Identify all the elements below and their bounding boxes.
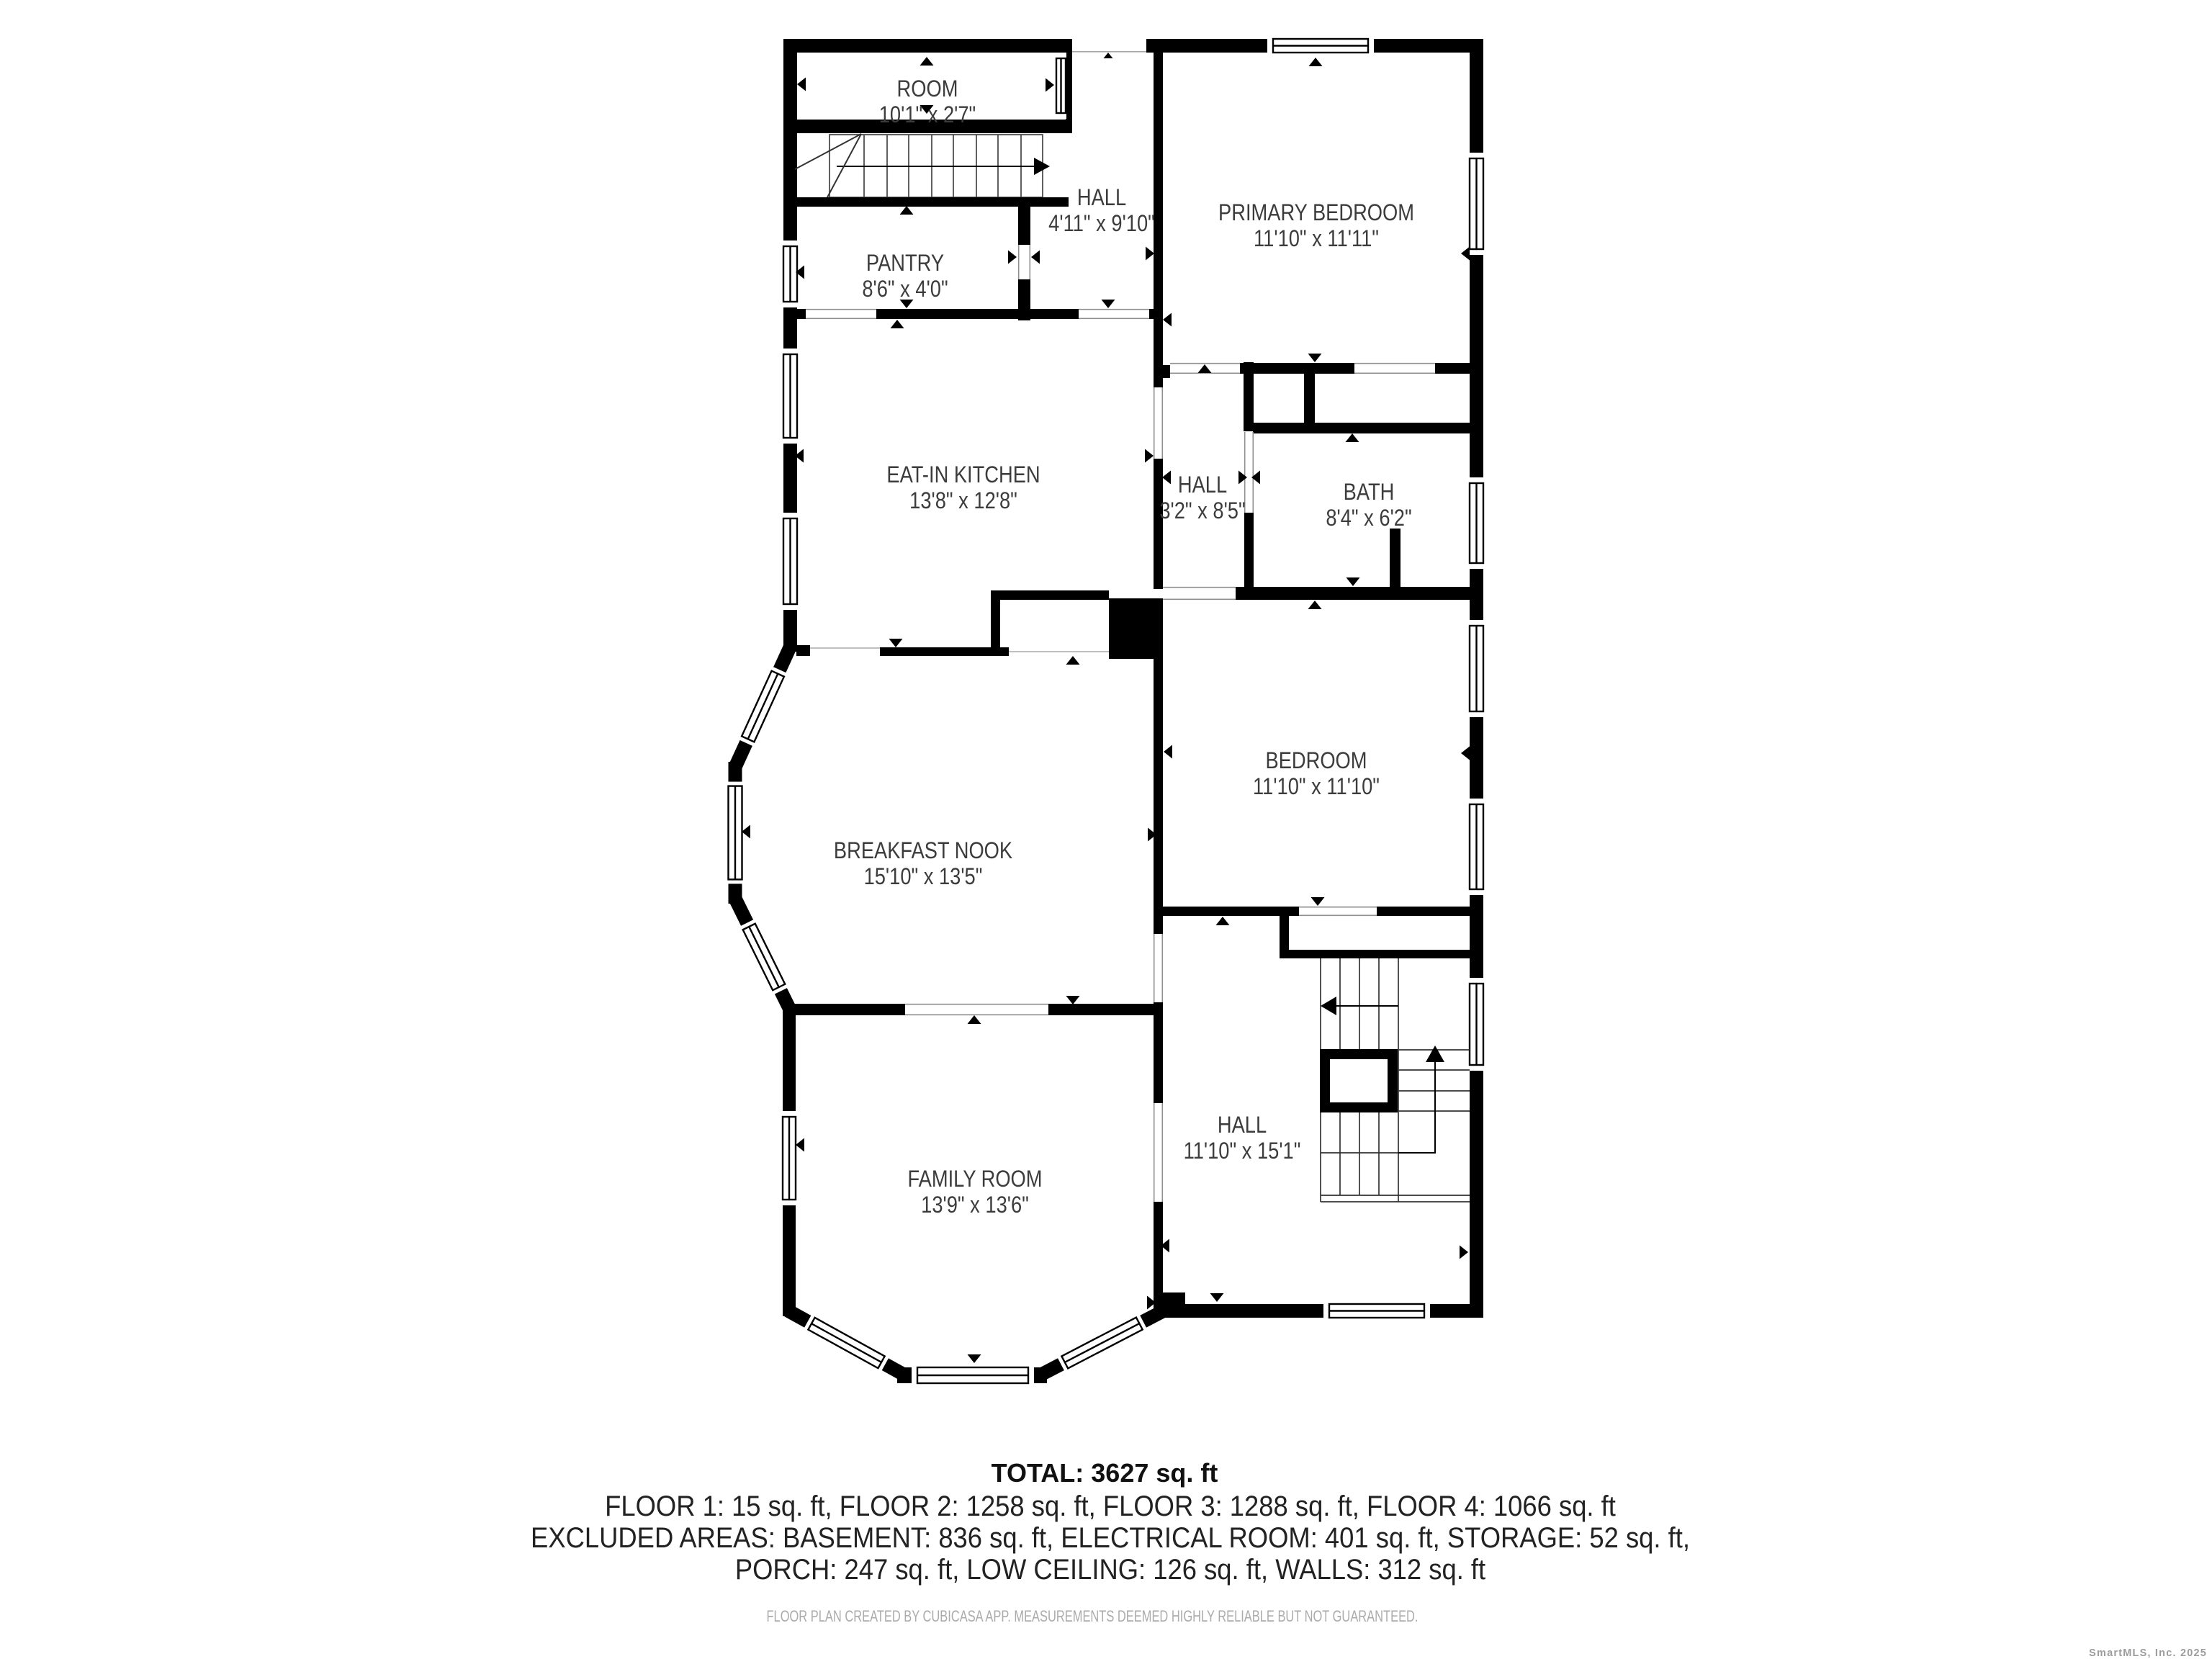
svg-text:TOTAL: 3627 sq. ft: TOTAL: 3627 sq. ft xyxy=(992,1458,1218,1488)
svg-text:3'2" x 8'5": 3'2" x 8'5" xyxy=(1159,498,1245,524)
svg-text:HALL: HALL xyxy=(1218,1112,1267,1138)
svg-text:FAMILY ROOM: FAMILY ROOM xyxy=(907,1166,1042,1192)
svg-text:BATH: BATH xyxy=(1344,480,1395,505)
svg-text:4'11" x 9'10": 4'11" x 9'10" xyxy=(1048,211,1155,237)
svg-text:PANTRY: PANTRY xyxy=(866,251,944,276)
svg-text:PORCH: 247 sq. ft, LOW CEILING: PORCH: 247 sq. ft, LOW CEILING: 126 sq. … xyxy=(735,1553,1486,1586)
svg-text:13'8" x 12'8": 13'8" x 12'8" xyxy=(909,488,1017,514)
svg-text:EAT-IN KITCHEN: EAT-IN KITCHEN xyxy=(886,462,1040,488)
svg-text:BREAKFAST NOOK: BREAKFAST NOOK xyxy=(834,838,1012,864)
svg-text:HALL: HALL xyxy=(1077,185,1126,211)
svg-text:11'10" x 11'10": 11'10" x 11'10" xyxy=(1253,774,1380,800)
svg-text:15'10" x 13'5": 15'10" x 13'5" xyxy=(864,864,983,890)
svg-text:8'4" x 6'2": 8'4" x 6'2" xyxy=(1326,505,1411,531)
svg-text:PRIMARY BEDROOM: PRIMARY BEDROOM xyxy=(1218,200,1414,226)
svg-text:FLOOR PLAN CREATED BY CUBICASA: FLOOR PLAN CREATED BY CUBICASA APP. MEAS… xyxy=(767,1607,1419,1625)
svg-text:FLOOR 1: 15 sq. ft, FLOOR 2: 1: FLOOR 1: 15 sq. ft, FLOOR 2: 1258 sq. ft… xyxy=(605,1490,1616,1522)
svg-text:11'10" x 15'1": 11'10" x 15'1" xyxy=(1184,1138,1301,1164)
svg-text:SmartMLS, Inc. 2025: SmartMLS, Inc. 2025 xyxy=(2089,1647,2207,1659)
svg-text:11'10" x 11'11": 11'10" x 11'11" xyxy=(1254,226,1379,252)
svg-text:EXCLUDED AREAS: BASEMENT: 836: EXCLUDED AREAS: BASEMENT: 836 sq. ft, EL… xyxy=(531,1521,1690,1554)
svg-text:BEDROOM: BEDROOM xyxy=(1265,748,1367,774)
svg-text:13'9" x 13'6": 13'9" x 13'6" xyxy=(921,1192,1029,1218)
svg-text:HALL: HALL xyxy=(1178,472,1227,498)
svg-text:ROOM: ROOM xyxy=(897,76,958,102)
svg-text:10'1" x 2'7": 10'1" x 2'7" xyxy=(879,102,976,128)
svg-text:8'6" x 4'0": 8'6" x 4'0" xyxy=(862,276,948,302)
